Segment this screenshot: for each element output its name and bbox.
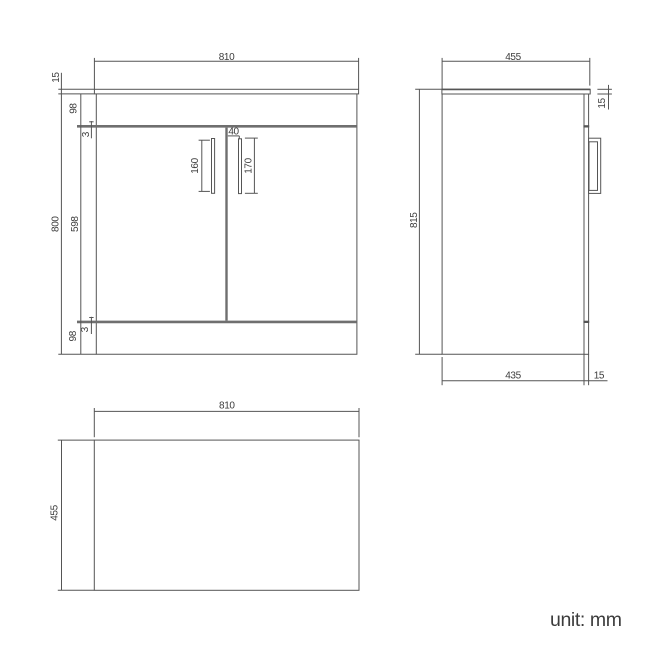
svg-text:15: 15 <box>597 98 608 109</box>
svg-text:455: 455 <box>505 52 521 63</box>
svg-text:810: 810 <box>219 401 235 412</box>
svg-text:3: 3 <box>80 326 91 332</box>
svg-text:815: 815 <box>409 212 420 228</box>
svg-text:98: 98 <box>69 103 80 114</box>
svg-text:3: 3 <box>81 131 92 137</box>
svg-text:800: 800 <box>50 216 61 232</box>
svg-text:435: 435 <box>505 370 521 381</box>
svg-text:unit: mm: unit: mm <box>550 609 622 631</box>
svg-text:810: 810 <box>219 52 235 63</box>
svg-text:98: 98 <box>68 330 79 341</box>
svg-text:160: 160 <box>190 157 201 173</box>
svg-text:170: 170 <box>243 157 254 173</box>
svg-text:15: 15 <box>594 370 605 381</box>
svg-text:40: 40 <box>228 126 239 137</box>
svg-text:455: 455 <box>50 504 61 520</box>
svg-text:15: 15 <box>51 72 62 83</box>
svg-text:598: 598 <box>70 216 81 232</box>
